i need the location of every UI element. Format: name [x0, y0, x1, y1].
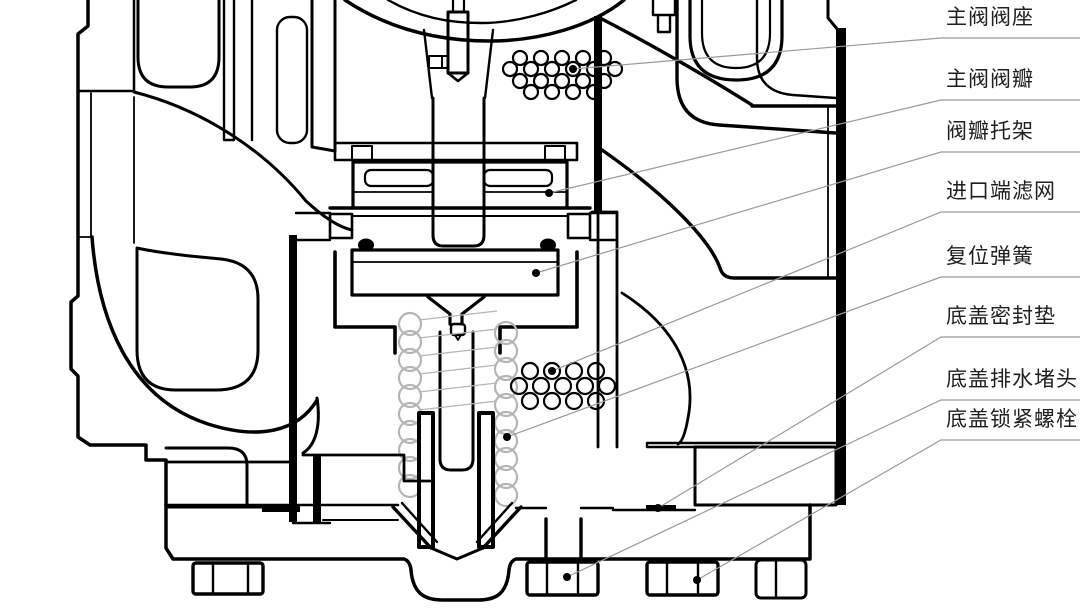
body-casting-left: [92, 0, 352, 507]
leader-line: [552, 212, 1080, 371]
diaphragm-chamber-arc: [345, 0, 624, 41]
part-label: 复位弹簧: [946, 244, 1034, 268]
part-label: 底盖排水堵头: [946, 367, 1078, 391]
screen-cage-wall: [594, 16, 602, 213]
part-label: 阀瓣托架: [946, 119, 1034, 143]
leader-dot: [532, 269, 540, 277]
outlet-flange-top-right: [677, 0, 836, 133]
callout-0: 主阀阀座: [569, 5, 1080, 73]
part-label: 底盖密封垫: [946, 304, 1056, 328]
leader-dot: [693, 576, 701, 584]
part-label: 主阀阀座: [946, 5, 1034, 29]
leader-dot: [548, 367, 556, 375]
part-label: 主阀阀瓣: [946, 67, 1034, 91]
disc-bracket: [335, 250, 577, 353]
valve-cross-section-drawing: 主阀阀座主阀阀瓣阀瓣托架进口端滤网复位弹簧底盖密封垫底盖排水堵头底盖锁紧螺栓: [0, 0, 1080, 611]
gasket-left: [262, 506, 300, 512]
chamber-wall-left: [289, 235, 297, 522]
leader-dot: [654, 504, 662, 512]
body-casting-right: [600, 0, 846, 505]
leader-dot: [545, 189, 553, 197]
locking-bolt: [647, 560, 806, 598]
part-label: 底盖锁紧螺栓: [946, 407, 1078, 431]
drain-plug: [527, 519, 598, 595]
chamber-wall-right: [592, 212, 617, 447]
main-valve-disc: [296, 162, 617, 252]
leader-dot: [563, 573, 571, 581]
part-label: 进口端滤网: [946, 179, 1056, 203]
leader-dot: [503, 433, 511, 441]
valve-diagram-page: 主阀阀座主阀阀瓣阀瓣托架进口端滤网复位弹簧底盖密封垫底盖排水堵头底盖锁紧螺栓: [0, 0, 1080, 611]
flange-bolt-left: [193, 563, 263, 594]
upper-strainer-perforations: [503, 51, 622, 99]
leader-dot: [569, 65, 577, 73]
main-valve-seat-band: [335, 143, 577, 160]
